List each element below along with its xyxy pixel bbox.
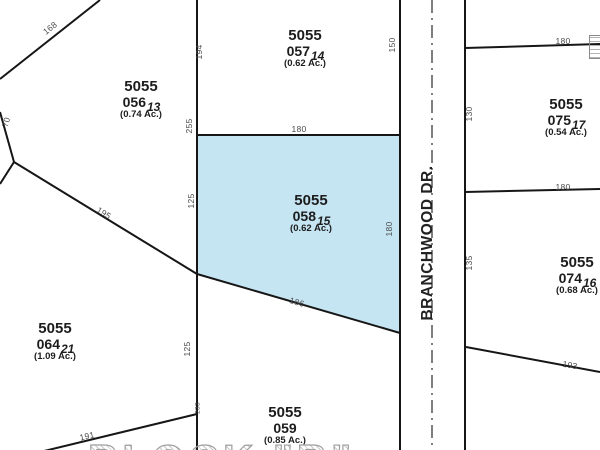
parcel-sub-number: 16 [583, 276, 596, 290]
parcel-lot-number: 05714 [284, 44, 326, 59]
dimension-label: 194 [194, 44, 204, 59]
parcel-block-number: 5055 [545, 97, 587, 113]
dimension-label: 180 [384, 221, 394, 236]
parcel-lot-number: 059 [264, 421, 306, 436]
dimension-label: 125 [182, 341, 192, 356]
parcel-074-north-line [465, 189, 600, 192]
parcel-label-074: 5055 07416 (0.68 Ac.) [556, 255, 598, 296]
dimension-label: 135 [464, 255, 474, 270]
partial-hatched-glyph [589, 35, 600, 59]
dimension-label: 125 [186, 193, 196, 208]
parcel-sub-number: 21 [61, 342, 74, 356]
parcel-block-number: 5055 [290, 193, 332, 209]
parcel-block-number: 5055 [34, 321, 76, 337]
parcel-block-number: 5055 [284, 28, 326, 44]
parcel-sub-number: 13 [147, 100, 160, 114]
parcel-074-south-line [466, 347, 600, 372]
parcel-block-number: 5055 [264, 405, 306, 421]
boundary-168-line [0, 0, 100, 79]
dimension-label: 150 [387, 37, 397, 52]
dimension-label: 255 [184, 118, 194, 133]
dimension-label: 180 [555, 182, 570, 192]
parcel-block-number: 5055 [120, 79, 162, 95]
street-name-label: BRANCHWOOD DR. [419, 165, 437, 320]
parcel-lot-number: 07517 [545, 113, 587, 128]
parcel-sub-number: 14 [311, 49, 324, 63]
parcel-label-056: 5055 05613 (0.74 Ac.) [120, 79, 162, 120]
dimension-label: 233 [195, 402, 202, 414]
parcel-sub-number: 15 [317, 214, 330, 228]
parcel-label-075: 5055 07517 (0.54 Ac.) [545, 97, 587, 138]
parcel-label-057: 5055 05714 (0.62 Ac.) [284, 28, 326, 69]
dimension-label: 130 [464, 106, 474, 121]
parcel-block-number: 5055 [556, 255, 598, 271]
block-b-label: BLOCK "B" [88, 436, 355, 450]
parcel-lot-number: 07416 [556, 271, 598, 286]
parcel-lot-number: 05815 [290, 209, 332, 224]
parcel-sub-number: 17 [572, 118, 585, 132]
parcel-label-058[interactable]: 5055 05815 (0.62 Ac.) [290, 193, 332, 234]
parcel-label-064: 5055 06421 (1.09 Ac.) [34, 321, 76, 362]
dimension-label: 180 [555, 36, 570, 46]
parcel-lot-number: 06421 [34, 337, 76, 352]
boundary-west-spur-line [0, 162, 14, 184]
dimension-label: 180 [291, 124, 306, 134]
parcel-lot-number: 05613 [120, 95, 162, 110]
plat-map: 168 70 194 255 195 180 125 180 186 125 2… [0, 0, 600, 450]
parcel-075-north-line [465, 44, 600, 48]
